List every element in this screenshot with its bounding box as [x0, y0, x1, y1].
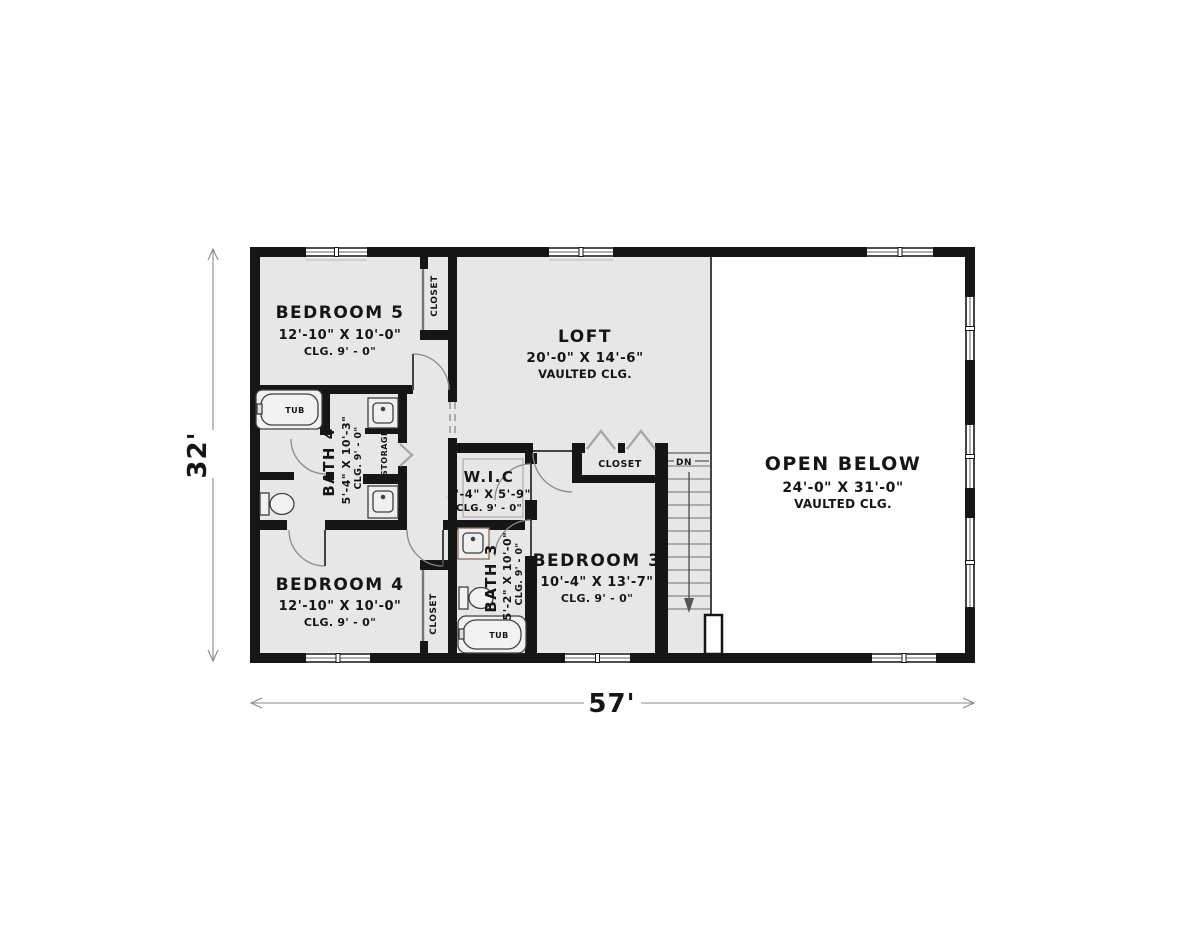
bath4-tub-label: TUB — [285, 406, 305, 415]
bedroom3-closet-label: CLOSET — [598, 459, 642, 470]
room-size: 10'-4" X 13'-7" — [540, 575, 653, 590]
room-name: BATH 3 — [482, 543, 500, 612]
floor-plan-drawing: BEDROOM 5 12'-10" X 10'-0" CLG. 9' - 0" … — [0, 0, 1200, 938]
room-name: W.I.C — [464, 468, 515, 486]
window-icon — [964, 425, 975, 488]
window-icon — [565, 652, 630, 663]
window-icon — [867, 246, 933, 257]
floor-plan-page: BEDROOM 5 12'-10" X 10'-0" CLG. 9' - 0" … — [0, 0, 1200, 938]
room-ceiling: CLG. 9' - 0" — [456, 503, 522, 514]
window-icon — [964, 297, 975, 360]
room-size: 24'-0" X 31'-0" — [782, 480, 903, 496]
room-size: 5'-2" X 10'-0" — [501, 532, 514, 621]
window-icon — [964, 518, 975, 607]
room-size: 20'-0" X 14'-6" — [526, 350, 643, 366]
room-name: LOFT — [558, 327, 612, 347]
room-size: 5'-4" X 10'-3" — [340, 416, 353, 505]
room-ceiling: CLG. 9' - 0" — [353, 427, 364, 490]
bath4-vanity-sink-bottom — [368, 486, 398, 518]
room-ceiling: CLG. 9' - 0" — [304, 345, 376, 358]
room-size: 12'-10" X 10'-0" — [279, 328, 402, 343]
bath4-vanity-sink-top — [368, 398, 398, 428]
room-name: OPEN BELOW — [765, 453, 922, 475]
room-name: BEDROOM 5 — [276, 303, 405, 323]
bedroom5-closet-label: CLOSET — [430, 275, 440, 317]
storage-label: STORAGE — [380, 430, 389, 476]
stair-newel-post — [705, 615, 722, 654]
stairs-down-label: DN — [676, 458, 692, 468]
room-size: 12'-10" X 10'-0" — [279, 599, 402, 614]
bath3-tub-label: TUB — [489, 631, 509, 640]
room-name: BATH 4 — [320, 427, 338, 496]
room-ceiling: CLG. 9' - 0" — [514, 543, 525, 606]
room-name: BEDROOM 4 — [276, 575, 405, 595]
room-ceiling: VAULTED CLG. — [538, 367, 632, 381]
height-dimension-label: 32' — [183, 431, 213, 478]
windows-right-wall — [964, 297, 975, 607]
room-size: 5'-4" X 5'-9" — [447, 487, 531, 501]
room-name: BEDROOM 3 — [533, 551, 662, 571]
window-icon — [872, 652, 936, 663]
bedroom4-closet-label: CLOSET — [429, 593, 439, 635]
width-dimension-label: 57' — [588, 689, 635, 719]
room-ceiling: CLG. 9' - 0" — [561, 592, 633, 605]
bath4-toilet — [260, 493, 294, 515]
room-ceiling: CLG. 9' - 0" — [304, 616, 376, 629]
window-icon — [306, 652, 370, 663]
room-ceiling: VAULTED CLG. — [794, 497, 892, 511]
